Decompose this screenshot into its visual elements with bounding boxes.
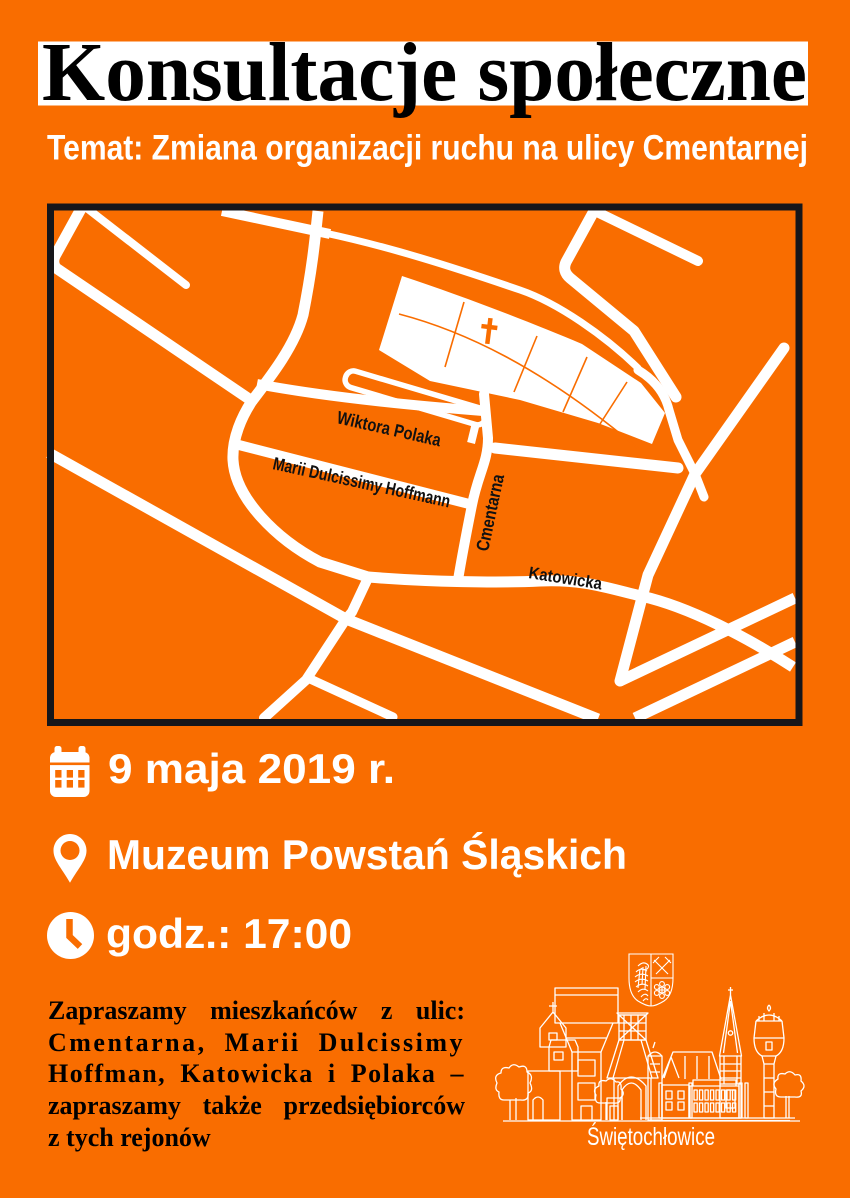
svg-text:Konsultacje społeczne: Konsultacje społeczne (42, 26, 807, 119)
svg-text:Katowicka: Katowicka (527, 563, 604, 593)
svg-text:godz.: 17:00: godz.: 17:00 (106, 910, 352, 957)
svg-text:Muzeum Powstań Śląskich: Muzeum Powstań Śląskich (107, 830, 627, 878)
svg-text:Marii Dulcissimy Hoffmann: Marii Dulcissimy Hoffmann (271, 453, 452, 511)
svg-text:Świętochłowice: Świętochłowice (587, 1121, 715, 1151)
svg-text:9 maja 2019 r.: 9 maja 2019 r. (108, 745, 395, 792)
svg-text:Wiktora Polaka: Wiktora Polaka (335, 407, 444, 450)
svg-text:Temat: Zmiana organizacji ruch: Temat: Zmiana organizacji ruchu na ulicy… (47, 129, 808, 168)
